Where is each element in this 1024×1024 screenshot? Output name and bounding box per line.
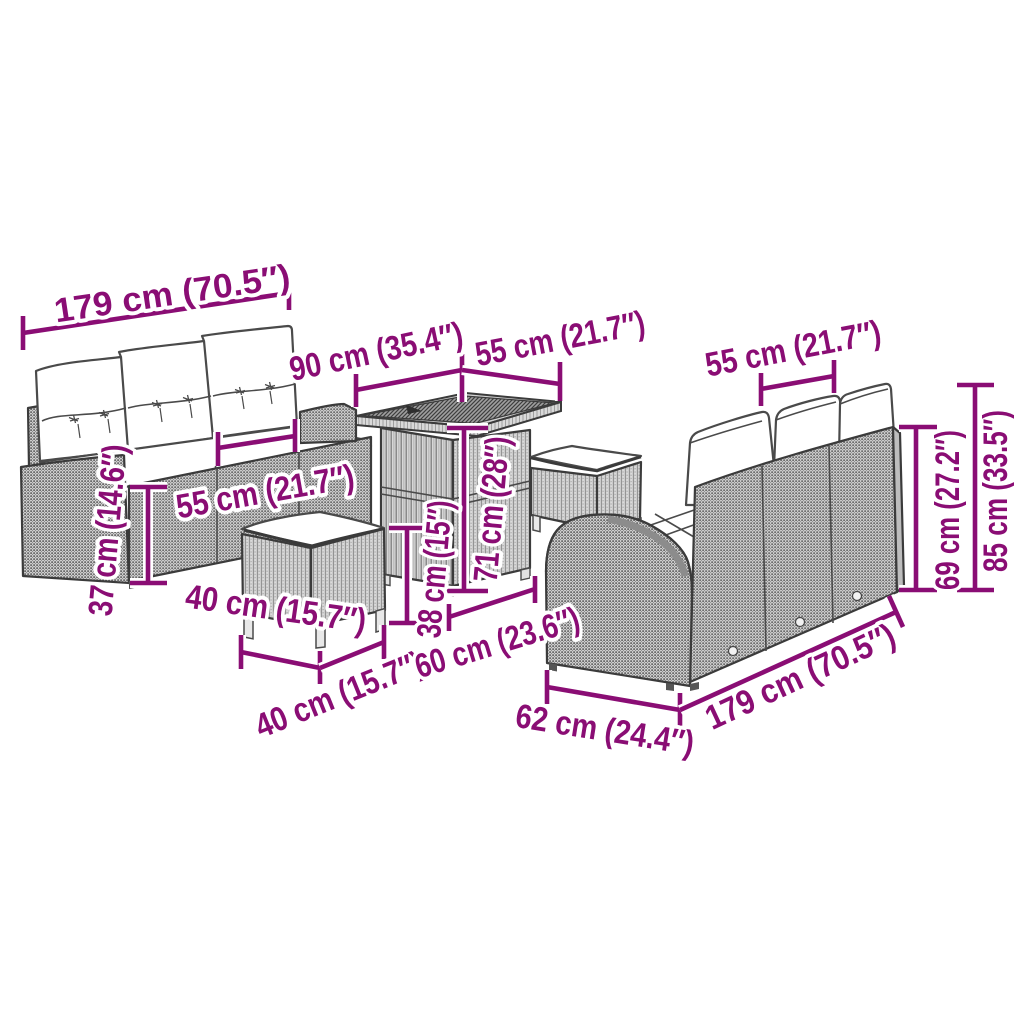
svg-text:85 cm (33.5″): 85 cm (33.5″) <box>977 410 1015 572</box>
svg-text:69 cm (27.2″): 69 cm (27.2″) <box>929 430 967 590</box>
